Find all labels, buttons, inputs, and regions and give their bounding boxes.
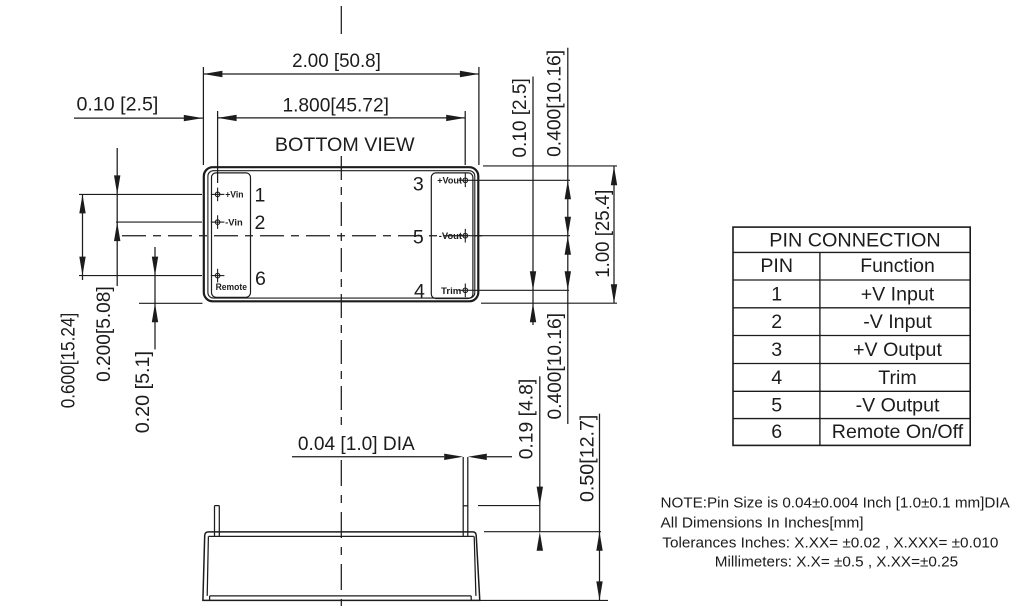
svg-text:0.19 [4.8]: 0.19 [4.8]	[516, 379, 538, 460]
svg-text:+Vout: +Vout	[437, 176, 462, 186]
svg-text:0.400[10.16]: 0.400[10.16]	[543, 50, 565, 157]
svg-text:-V Input: -V Input	[863, 311, 932, 333]
svg-text:2.00 [50.8]: 2.00 [50.8]	[292, 50, 381, 72]
svg-text:Tolerances Inches: X.XX= ±0.02: Tolerances Inches: X.XX= ±0.02 , X.XXX= …	[662, 535, 998, 552]
svg-text:0.200[5.08]: 0.200[5.08]	[93, 286, 115, 382]
svg-text:4: 4	[414, 281, 425, 303]
svg-text:Function: Function	[860, 255, 935, 277]
svg-text:0.04 [1.0] DIA: 0.04 [1.0] DIA	[298, 433, 416, 455]
svg-text:BOTTOM VIEW: BOTTOM VIEW	[275, 134, 415, 156]
svg-text:0.10 [2.5]: 0.10 [2.5]	[509, 78, 531, 157]
svg-text:Remote: Remote	[216, 282, 247, 292]
svg-text:3: 3	[771, 339, 782, 361]
svg-text:1: 1	[254, 184, 265, 206]
svg-text:NOTE:Pin Size is 0.04±0.004 In: NOTE:Pin Size is 0.04±0.004 Inch [1.0±0.…	[661, 495, 1011, 512]
svg-text:PIN: PIN	[760, 255, 793, 277]
svg-text:Remote On/Off: Remote On/Off	[832, 421, 964, 443]
svg-text:0.400[10.16]: 0.400[10.16]	[544, 313, 566, 420]
svg-text:5: 5	[771, 394, 782, 416]
svg-text:3: 3	[413, 173, 424, 195]
svg-text:PIN CONNECTION: PIN CONNECTION	[769, 229, 940, 251]
svg-text:1.00 [25.4]: 1.00 [25.4]	[592, 190, 614, 278]
svg-text:-Vin: -Vin	[225, 217, 243, 227]
svg-text:4: 4	[771, 367, 782, 389]
svg-text:0.50[12.7]: 0.50[12.7]	[577, 415, 599, 502]
svg-text:1.800[45.72]: 1.800[45.72]	[282, 94, 389, 116]
svg-text:-V Output: -V Output	[856, 394, 940, 416]
svg-text:0.600[15.24]: 0.600[15.24]	[58, 313, 80, 409]
svg-text:+V Input: +V Input	[861, 284, 935, 306]
svg-text:0.10 [2.5]: 0.10 [2.5]	[77, 94, 159, 116]
svg-text:Millimeters: X.X= ±0.5 , X.XX=: Millimeters: X.X= ±0.5 , X.XX=±0.25	[715, 554, 958, 571]
svg-text:+V Output: +V Output	[853, 339, 942, 361]
svg-text:Trim: Trim	[441, 286, 461, 296]
svg-text:5: 5	[413, 227, 424, 249]
svg-text:6: 6	[771, 421, 782, 443]
svg-text:1: 1	[771, 284, 782, 306]
svg-text:0.20 [5.1]: 0.20 [5.1]	[132, 351, 154, 433]
svg-text:All Dimensions In Inches[mm]: All Dimensions In Inches[mm]	[661, 515, 864, 532]
svg-text:2: 2	[254, 212, 265, 234]
svg-text:+Vin: +Vin	[225, 190, 244, 200]
svg-text:2: 2	[771, 311, 782, 333]
svg-text:6: 6	[255, 268, 266, 290]
svg-text:Trim: Trim	[878, 367, 916, 389]
